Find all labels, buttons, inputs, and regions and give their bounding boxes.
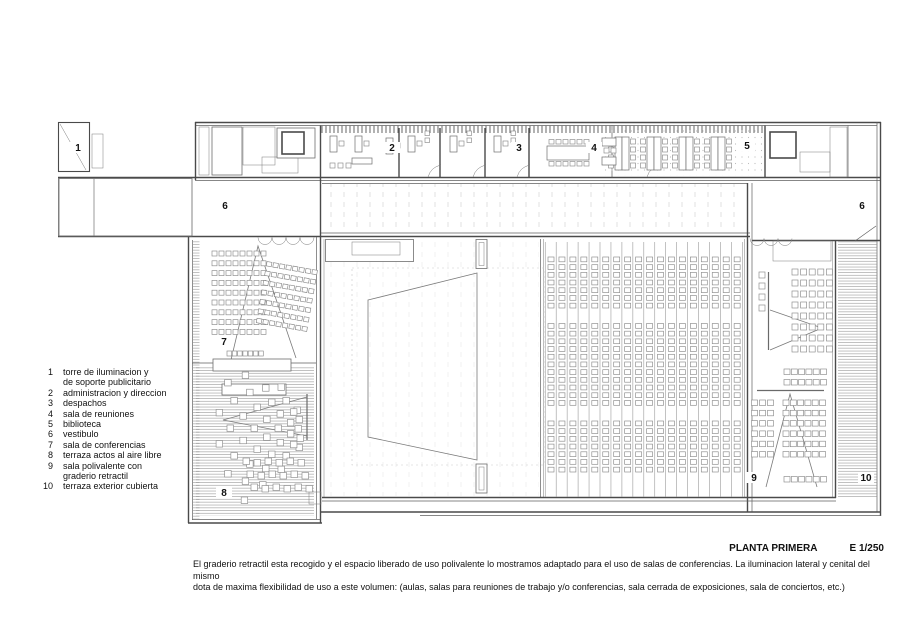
plan-scale: E 1/250 xyxy=(850,543,884,554)
corridor-floor xyxy=(322,184,746,232)
room-number: 6 xyxy=(222,201,228,212)
stair-block-left xyxy=(199,127,315,175)
caption-line-1: El graderio retractil esta recogido y el… xyxy=(193,559,893,582)
legend-item-number: 6 xyxy=(38,429,53,439)
room-number: 6 xyxy=(859,201,865,212)
legend-item: 2administracion y direccion xyxy=(38,388,167,398)
legend-item-label: sala de conferencias xyxy=(63,440,146,450)
vestibule-door-leaf xyxy=(855,226,876,241)
room-number: 2 xyxy=(389,143,395,154)
caption: El graderio retractil esta recogido y el… xyxy=(193,559,893,594)
floor-plan-sheet: 123456678910 1torre de iluminacion y de … xyxy=(0,0,900,636)
legend-item-number: 1 xyxy=(38,367,53,388)
room-number: 7 xyxy=(221,337,227,348)
room9-seats xyxy=(752,269,833,482)
legend-item-label: biblioteca xyxy=(63,419,101,429)
legend: 1torre de iluminacion y de soporte publi… xyxy=(38,367,167,492)
legend-item-number: 7 xyxy=(38,440,53,450)
legend-item-label: terraza exterior cubierta xyxy=(63,481,158,491)
room-number: 3 xyxy=(516,143,522,154)
entrance-stair-hatch xyxy=(59,179,94,237)
proscenium-post-bottom xyxy=(476,464,487,493)
stage-floor xyxy=(325,240,539,496)
room-number: 8 xyxy=(221,488,227,499)
legend-item: 1torre de iluminacion y de soporte publi… xyxy=(38,367,167,388)
legend-item: 3despachos xyxy=(38,398,167,408)
room-number: 9 xyxy=(751,473,757,484)
room-number: 5 xyxy=(744,141,750,152)
plan-title: PLANTA PRIMERA xyxy=(729,543,817,554)
hall-seating xyxy=(545,242,742,497)
room-number: 10 xyxy=(860,473,872,484)
legend-item-number: 10 xyxy=(38,481,53,491)
legend-item-number: 8 xyxy=(38,450,53,460)
legend-item: 5biblioteca xyxy=(38,419,167,429)
legend-item-label: administracion y direccion xyxy=(63,388,167,398)
legend-item: 6vestibulo xyxy=(38,429,167,439)
hatched-areas xyxy=(59,126,877,519)
legend-item-number: 5 xyxy=(38,419,53,429)
terrace-10-hatch xyxy=(838,241,877,497)
legend-item-label: vestibulo xyxy=(63,429,99,439)
legend-item-label: torre de iluminacion y de soporte public… xyxy=(63,367,151,388)
legend-item: 7sala de conferencias xyxy=(38,440,167,450)
legend-item: 10terraza exterior cubierta xyxy=(38,481,167,491)
legend-item-label: sala de reuniones xyxy=(63,409,134,419)
legend-item-label: despachos xyxy=(63,398,107,408)
legend-item: 8terraza actos al aire libre xyxy=(38,450,167,460)
room-number: 4 xyxy=(591,143,597,154)
legend-item-label: sala polivalente con graderio retractil xyxy=(63,461,142,482)
room-number: 1 xyxy=(75,143,81,154)
legend-item: 9sala polivalente con graderio retractil xyxy=(38,461,167,482)
legend-item-number: 3 xyxy=(38,398,53,408)
title-block: PLANTA PRIMERAE 1/250 xyxy=(729,543,884,554)
floor-plan-drawing: 123456678910 xyxy=(0,0,900,636)
caption-line-2: dota de maxima flexibilidad de uso a est… xyxy=(193,582,893,594)
proscenium-post-top xyxy=(476,240,487,269)
entrance-ramp-hatch xyxy=(94,179,192,237)
room7-seats-right xyxy=(256,261,317,331)
room9-stair-hatch xyxy=(773,241,831,261)
legend-item: 4sala de reuniones xyxy=(38,409,167,419)
left-wall-hatch xyxy=(193,240,200,519)
legend-item-number: 9 xyxy=(38,461,53,482)
legend-item-number: 2 xyxy=(38,388,53,398)
legend-item-number: 4 xyxy=(38,409,53,419)
stair-block-right xyxy=(770,127,847,177)
legend-item-label: terraza actos al aire libre xyxy=(63,450,162,460)
